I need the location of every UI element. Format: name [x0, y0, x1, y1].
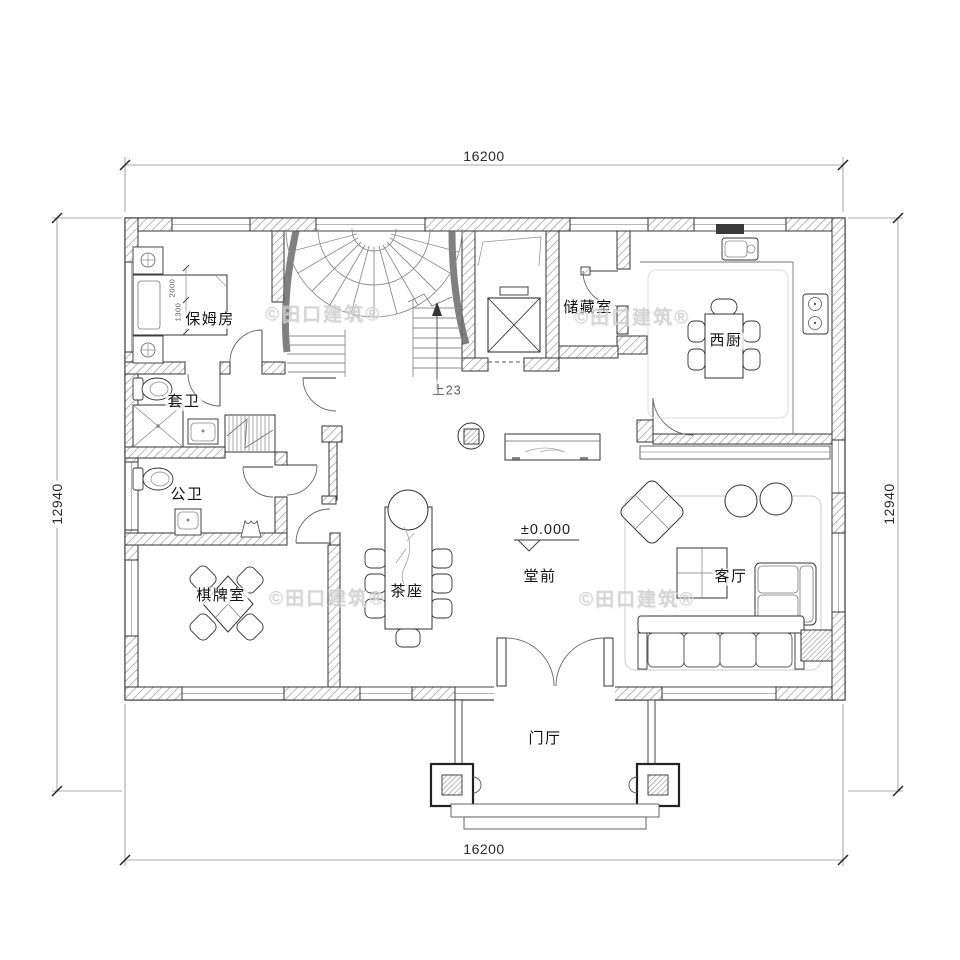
bed-dim-depth: 1300: [174, 303, 183, 322]
stair-up-arrow: [432, 302, 442, 316]
elevator: [478, 237, 541, 362]
floor-plan-linework: [0, 0, 960, 960]
room-label-living: 客厅: [712, 569, 749, 586]
watermark: ©田口建筑®: [579, 585, 695, 612]
bed-dim-width: 2000: [168, 279, 177, 298]
elevation-marker: [514, 540, 579, 551]
room-label-ensuite: 套卫: [165, 394, 202, 411]
stair-note: 上23: [432, 380, 461, 399]
ensuite-fixtures: [133, 378, 218, 447]
dim-bottom-value: 16200: [460, 841, 507, 857]
porch: [431, 700, 679, 829]
entry-double-door: [497, 638, 613, 686]
watermark: ©田口建筑®: [574, 303, 690, 330]
room-label-front-hall: 堂前: [521, 569, 558, 586]
room-label-chess: 棋牌室: [194, 588, 248, 605]
room-label-nanny: 保姆房: [183, 312, 237, 329]
elevation-label: ±0.000: [521, 522, 571, 538]
watermark: ©田口建筑®: [269, 584, 385, 611]
sideboard: [505, 434, 600, 460]
entry-opening: [494, 684, 615, 702]
dim-right-value: 12940: [881, 480, 897, 527]
room-label-public-bath: 公卫: [168, 487, 205, 504]
tea-table: [365, 490, 452, 647]
floor-plan-canvas: 16200 16200 12940 12940 保姆房 套卫 公卫 棋牌室 茶座…: [0, 0, 960, 960]
closet: [225, 415, 275, 452]
divider-cabinet: [640, 446, 830, 459]
room-label-foyer: 门厅: [526, 731, 563, 748]
dim-top-value: 16200: [460, 148, 507, 164]
watermark: ©田口建筑®: [265, 300, 381, 327]
room-label-west-kitchen: 西厨: [707, 333, 744, 350]
hall-column: [458, 423, 484, 449]
dim-left-value: 12940: [49, 480, 65, 527]
room-label-tea: 茶座: [388, 584, 425, 601]
